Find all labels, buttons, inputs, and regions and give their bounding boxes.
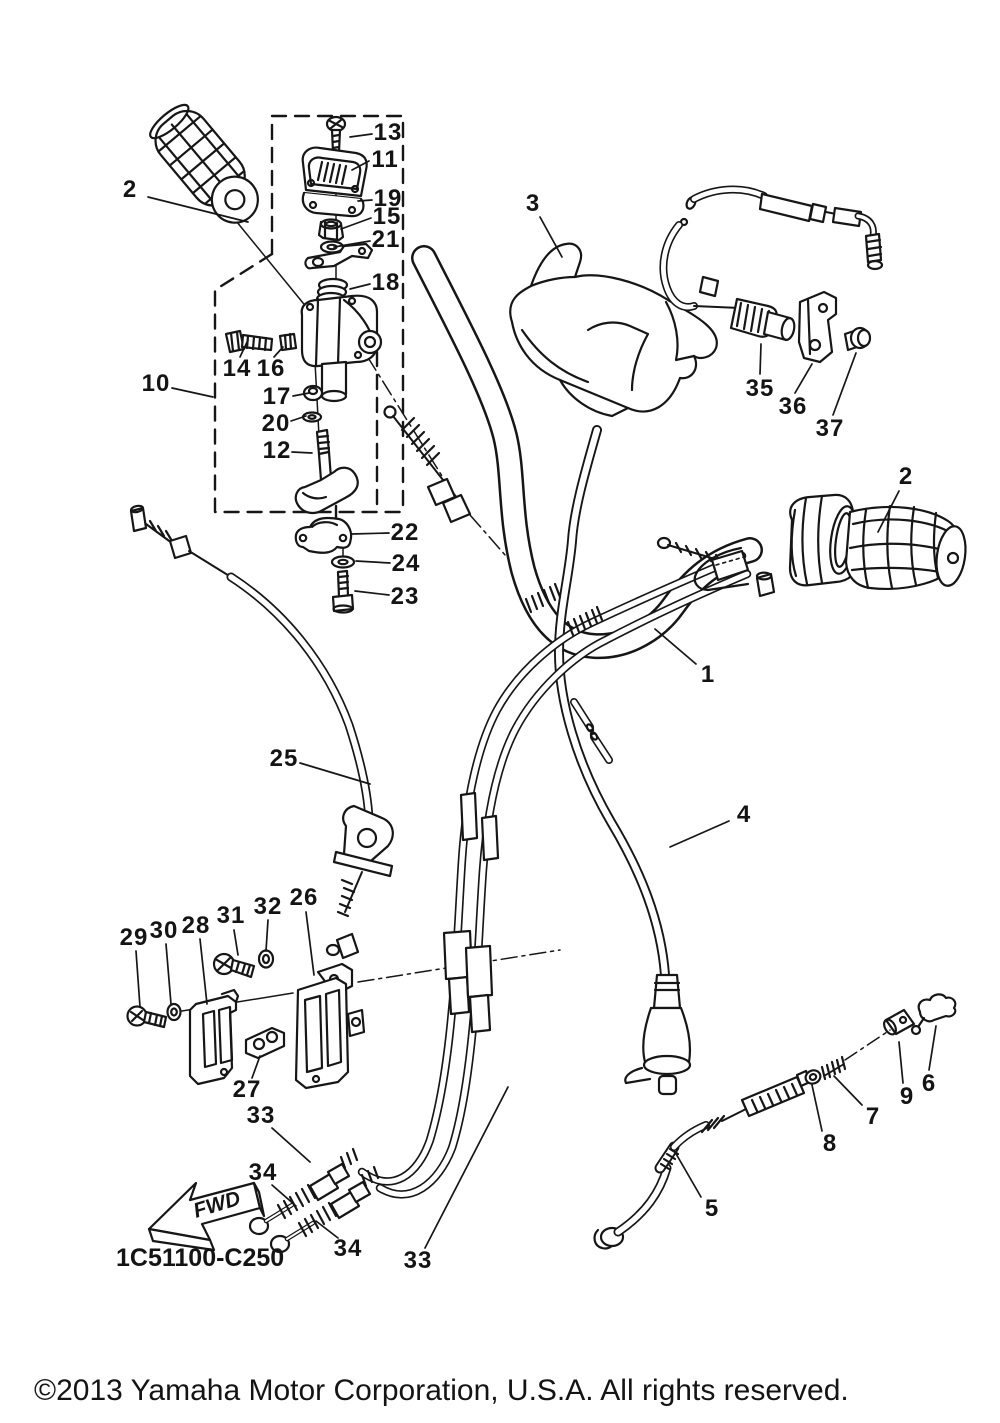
diagram-canvas: FWD <box>0 0 1000 1423</box>
lever-12 <box>296 430 358 513</box>
fwd-arrow: FWD <box>149 1183 264 1250</box>
spring-end-34-a <box>250 1149 357 1234</box>
cable-bracket-36 <box>799 292 836 362</box>
holder-27 <box>246 1028 284 1058</box>
parts-diagram-page: FWD 131119152118210141617201222242333536… <box>0 0 1000 1423</box>
clamp-22 <box>296 518 351 553</box>
bolt-14 <box>226 331 272 352</box>
copyright-text: ©2013 Yamaha Motor Corporation, U.S.A. A… <box>34 1374 849 1408</box>
screw-29 <box>128 1007 167 1028</box>
cable-25 <box>131 505 393 958</box>
lever-rod-spring <box>385 407 471 523</box>
washer-24 <box>332 557 354 568</box>
washer-32 <box>259 951 273 968</box>
cable-4 <box>559 430 690 1094</box>
bracket-screw-37 <box>845 328 870 350</box>
gasket-19 <box>303 193 364 216</box>
part-code: 1C51100-C250 <box>116 1244 284 1273</box>
switch-block-26 <box>296 964 364 1088</box>
nut-15 <box>319 220 343 241</box>
washer-30 <box>168 1004 181 1020</box>
washer-20 <box>303 413 321 422</box>
wing-piece-6 <box>912 994 955 1034</box>
left-grip <box>143 97 271 235</box>
cable-5 <box>595 1071 810 1248</box>
screw-13 <box>327 117 345 152</box>
switch-block-28 <box>190 990 238 1084</box>
screw-31 <box>214 954 254 977</box>
pin-9 <box>882 1010 914 1036</box>
bolt-23 <box>333 571 353 613</box>
handlebar-cover <box>510 244 717 416</box>
cover-11 <box>303 148 367 196</box>
